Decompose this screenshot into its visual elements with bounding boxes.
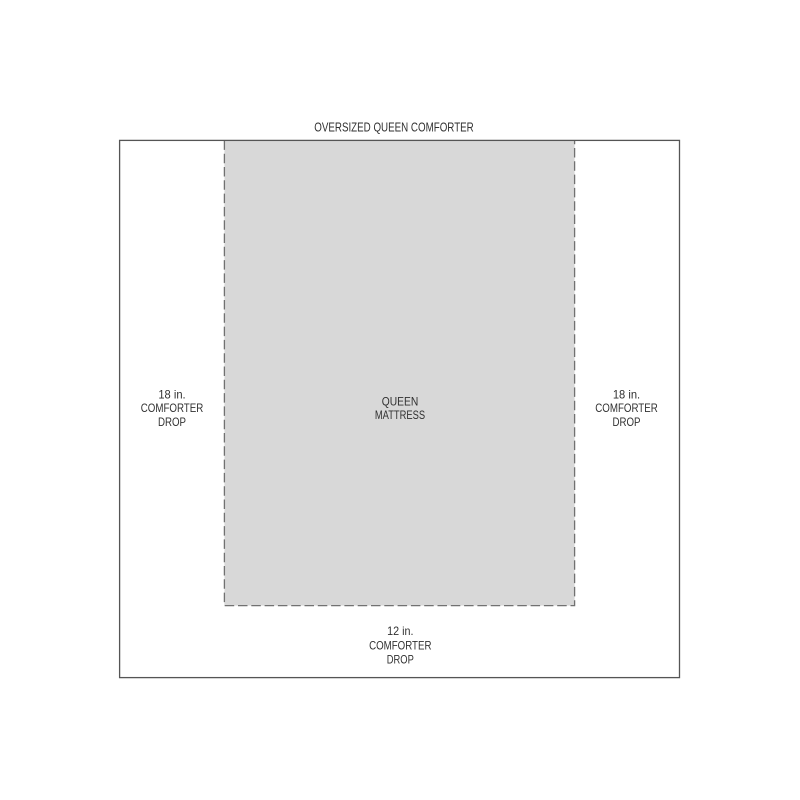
- svg-text:MATTRESS: MATTRESS: [375, 408, 425, 422]
- svg-text:COMFORTER: COMFORTER: [141, 401, 204, 415]
- svg-text:OVERSIZED QUEEN COMFORTER: OVERSIZED QUEEN COMFORTER: [314, 119, 474, 134]
- svg-text:12 in.: 12 in.: [387, 624, 413, 638]
- svg-text:DROP: DROP: [158, 415, 186, 429]
- svg-text:DROP: DROP: [387, 653, 414, 667]
- svg-text:18 in.: 18 in.: [158, 388, 185, 402]
- svg-text:QUEEN: QUEEN: [382, 394, 419, 408]
- svg-text:DROP: DROP: [613, 415, 641, 429]
- svg-text:COMFORTER: COMFORTER: [369, 639, 432, 653]
- svg-text:18 in.: 18 in.: [613, 388, 640, 402]
- svg-text:COMFORTER: COMFORTER: [595, 401, 658, 415]
